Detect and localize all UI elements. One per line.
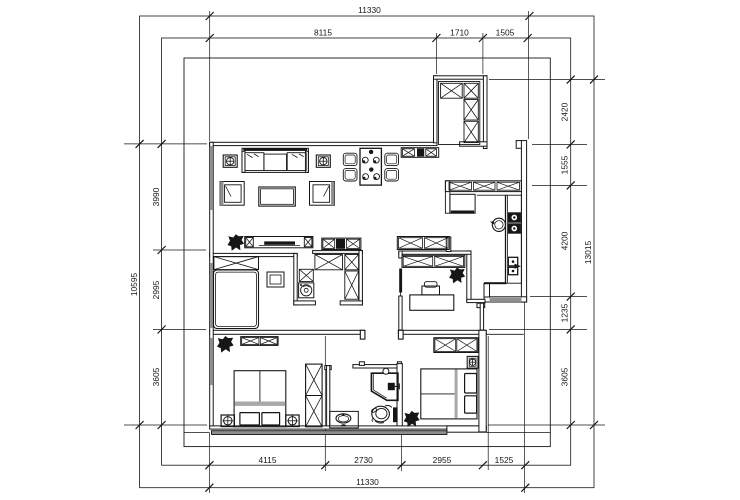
svg-text:2995: 2995 [151, 280, 161, 299]
svg-text:2730: 2730 [354, 455, 373, 465]
svg-text:8115: 8115 [314, 27, 332, 37]
svg-text:1505: 1505 [496, 27, 515, 37]
svg-text:1525: 1525 [495, 455, 514, 465]
svg-text:3605: 3605 [560, 367, 570, 386]
svg-text:1710: 1710 [450, 27, 469, 37]
svg-text:1555: 1555 [560, 155, 570, 174]
svg-text:10595: 10595 [129, 273, 139, 297]
svg-text:4200: 4200 [560, 231, 570, 250]
svg-text:4115: 4115 [258, 455, 276, 465]
svg-text:13015: 13015 [583, 241, 593, 265]
svg-text:2420: 2420 [560, 102, 570, 121]
svg-text:3605: 3605 [151, 367, 161, 386]
svg-text:3990: 3990 [151, 187, 161, 206]
svg-text:11330: 11330 [356, 477, 379, 487]
svg-text:1235: 1235 [560, 303, 570, 322]
svg-text:11330: 11330 [358, 5, 381, 15]
svg-text:2955: 2955 [433, 455, 452, 465]
